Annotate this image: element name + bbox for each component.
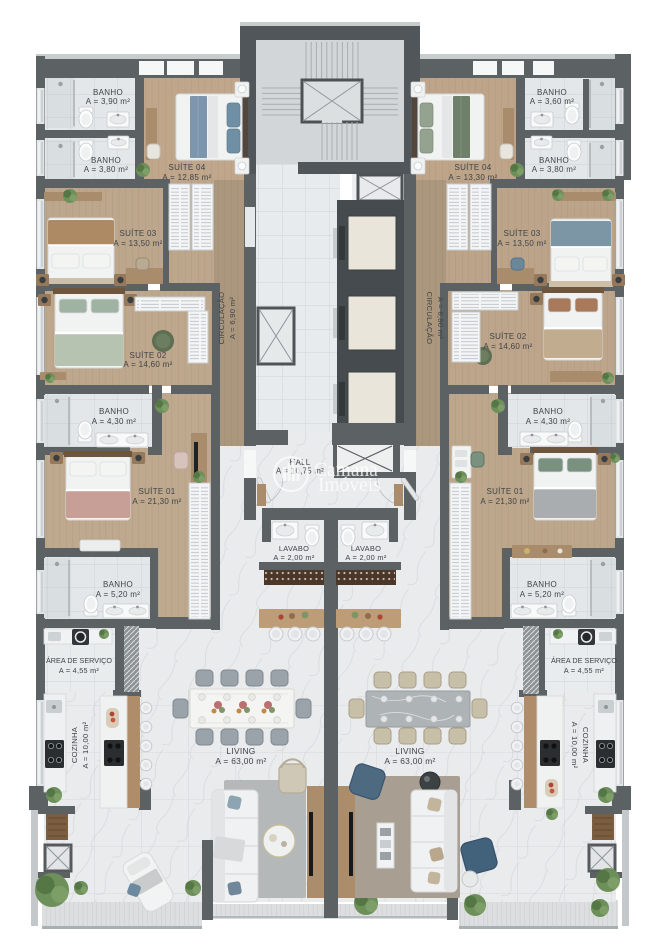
svg-text:SUÍTE 01: SUÍTE 01	[486, 487, 523, 496]
svg-text:A = 4,55 m²: A = 4,55 m²	[564, 666, 605, 675]
svg-text:SUÍTE 02: SUÍTE 02	[489, 332, 526, 341]
svg-text:BANHO: BANHO	[527, 580, 557, 589]
svg-text:A = 4,30 m²: A = 4,30 m²	[526, 417, 570, 426]
svg-text:A = 13,50 m²: A = 13,50 m²	[497, 239, 546, 248]
svg-text:SUÍTE 04: SUÍTE 04	[168, 163, 205, 172]
svg-text:A = 6,90 m²: A = 6,90 m²	[228, 297, 237, 340]
svg-text:A = 5,20 m²: A = 5,20 m²	[520, 590, 564, 599]
svg-text:A = 3,80 m²: A = 3,80 m²	[84, 165, 128, 174]
svg-text:A = 4,30 m²: A = 4,30 m²	[92, 417, 136, 426]
svg-text:A = 6,80 m²: A = 6,80 m²	[436, 297, 445, 340]
svg-text:CIRCULAÇÃO: CIRCULAÇÃO	[217, 292, 226, 345]
svg-text:CIRCULAÇÃO: CIRCULAÇÃO	[425, 292, 434, 345]
svg-text:LIVING: LIVING	[395, 746, 424, 756]
svg-text:LAVABO: LAVABO	[351, 544, 381, 553]
svg-text:COZINHA: COZINHA	[70, 726, 79, 763]
svg-text:A = 3,80 m²: A = 3,80 m²	[532, 165, 576, 174]
svg-text:A = 2,00 m²: A = 2,00 m²	[345, 553, 387, 562]
svg-text:LAVABO: LAVABO	[279, 544, 309, 553]
svg-text:A = 21,30 m²: A = 21,30 m²	[480, 497, 529, 506]
svg-text:BANHO: BANHO	[91, 156, 121, 165]
svg-text:SUÍTE 02: SUÍTE 02	[129, 351, 166, 360]
svg-text:SUÍTE 01: SUÍTE 01	[138, 487, 175, 496]
svg-text:A = 2,00 m²: A = 2,00 m²	[273, 553, 315, 562]
svg-text:A = 13,50 m²: A = 13,50 m²	[113, 239, 162, 248]
svg-text:COZINHA: COZINHA	[581, 727, 590, 764]
svg-text:A = 63,00 m²: A = 63,00 m²	[384, 756, 435, 766]
svg-text:BANHO: BANHO	[537, 88, 567, 97]
svg-text:A = 5,20 m²: A = 5,20 m²	[96, 590, 140, 599]
svg-text:ÁREA DE SERVIÇO: ÁREA DE SERVIÇO	[551, 656, 617, 665]
svg-text:LIVING: LIVING	[226, 746, 255, 756]
svg-text:A = 3,90 m²: A = 3,90 m²	[86, 97, 130, 106]
svg-text:BANHO: BANHO	[99, 407, 129, 416]
svg-text:A = 13,30 m²: A = 13,30 m²	[448, 173, 497, 182]
svg-text:Imóveis: Imóveis	[318, 475, 381, 496]
svg-text:A = 21,30 m²: A = 21,30 m²	[132, 497, 181, 506]
svg-text:BANHO: BANHO	[533, 407, 563, 416]
svg-text:SUÍTE 03: SUÍTE 03	[503, 229, 540, 238]
svg-text:A = 12,85 m²: A = 12,85 m²	[162, 173, 211, 182]
svg-text:BANHO: BANHO	[93, 88, 123, 97]
svg-text:A = 4,55 m²: A = 4,55 m²	[59, 666, 100, 675]
svg-text:ÁREA DE SERVIÇO: ÁREA DE SERVIÇO	[46, 656, 112, 665]
svg-text:BANHO: BANHO	[103, 580, 133, 589]
svg-text:A = 14,60 m²: A = 14,60 m²	[123, 360, 172, 369]
svg-text:BANHO: BANHO	[539, 156, 569, 165]
svg-text:A = 63,00 m²: A = 63,00 m²	[215, 756, 266, 766]
svg-text:SUÍTE 04: SUÍTE 04	[454, 163, 491, 172]
svg-text:A = 10,00 m²: A = 10,00 m²	[81, 721, 90, 768]
svg-text:A = 14,60 m²: A = 14,60 m²	[483, 342, 532, 351]
svg-text:SUÍTE 03: SUÍTE 03	[119, 229, 156, 238]
svg-text:A = 3,60 m²: A = 3,60 m²	[530, 97, 574, 106]
svg-text:A = 10,00 m²: A = 10,00 m²	[570, 722, 579, 769]
